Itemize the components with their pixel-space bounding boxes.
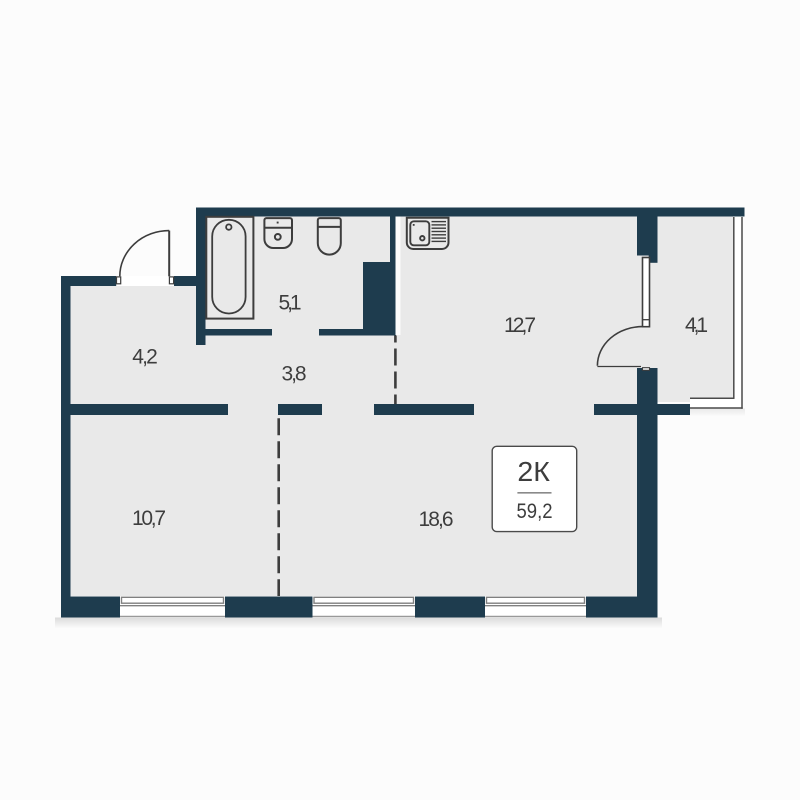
svg-text:10,7: 10,7 (132, 507, 166, 530)
svg-text:4,1: 4,1 (685, 314, 708, 337)
svg-text:12,7: 12,7 (504, 314, 536, 337)
svg-text:18,6: 18,6 (419, 508, 454, 531)
svg-text:2К: 2К (517, 456, 550, 487)
svg-text:3,8: 3,8 (282, 362, 307, 385)
svg-text:4,2: 4,2 (132, 345, 158, 368)
svg-text:5,1: 5,1 (279, 292, 302, 315)
svg-text:59,2: 59,2 (517, 500, 553, 523)
